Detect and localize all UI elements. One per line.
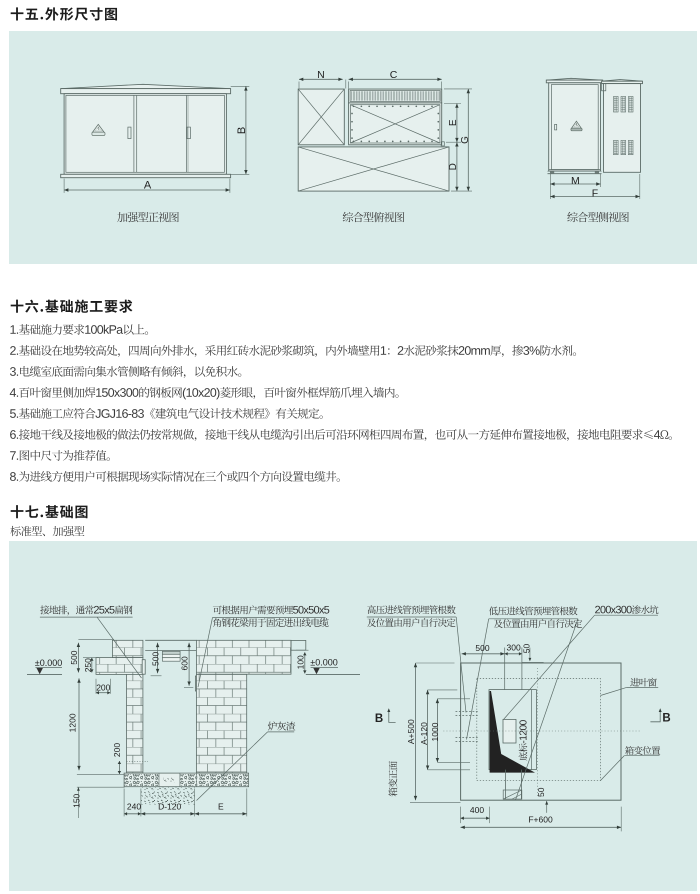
- svg-text:500: 500: [150, 652, 160, 666]
- svg-text:G: G: [460, 136, 471, 144]
- svg-text:F+600: F+600: [528, 815, 553, 825]
- svg-text:D: D: [448, 163, 459, 170]
- svg-text:E: E: [448, 119, 459, 126]
- svg-text:400: 400: [470, 805, 484, 815]
- svg-text:240: 240: [127, 801, 141, 811]
- svg-text:B: B: [375, 713, 383, 725]
- svg-text:±0.000: ±0.000: [35, 658, 62, 668]
- svg-text:A-120: A-120: [419, 722, 429, 745]
- svg-text:200: 200: [112, 743, 122, 757]
- svg-text:M: M: [571, 175, 580, 187]
- svg-text:300: 300: [507, 642, 521, 652]
- svg-text:250: 250: [83, 658, 93, 672]
- svg-text:600: 600: [180, 656, 190, 670]
- svg-text:200: 200: [96, 682, 110, 692]
- svg-text:150: 150: [71, 793, 81, 807]
- svg-text:F: F: [592, 188, 598, 200]
- svg-text:500: 500: [475, 643, 489, 653]
- svg-text:B: B: [662, 712, 670, 724]
- svg-text:C: C: [390, 69, 398, 81]
- svg-text:A+500: A+500: [406, 719, 416, 744]
- svg-text:D-120: D-120: [158, 801, 181, 811]
- svg-text:N: N: [317, 69, 325, 81]
- svg-text:1200: 1200: [67, 713, 77, 732]
- svg-text:50: 50: [522, 644, 532, 654]
- svg-text:500: 500: [69, 650, 79, 664]
- svg-text:50: 50: [536, 787, 546, 797]
- svg-text:B: B: [236, 127, 248, 134]
- svg-text:A: A: [144, 179, 152, 191]
- svg-text:100: 100: [295, 655, 305, 669]
- svg-text:E: E: [218, 801, 224, 811]
- svg-text:±0.000: ±0.000: [310, 658, 337, 668]
- svg-text:1000: 1000: [430, 722, 440, 741]
